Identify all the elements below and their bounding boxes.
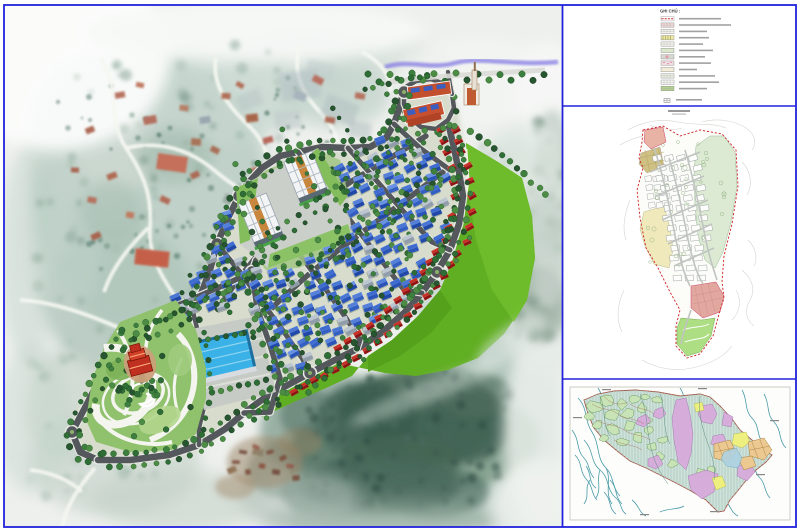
svg-text:GHI CHÚ :: GHI CHÚ : (660, 9, 680, 14)
